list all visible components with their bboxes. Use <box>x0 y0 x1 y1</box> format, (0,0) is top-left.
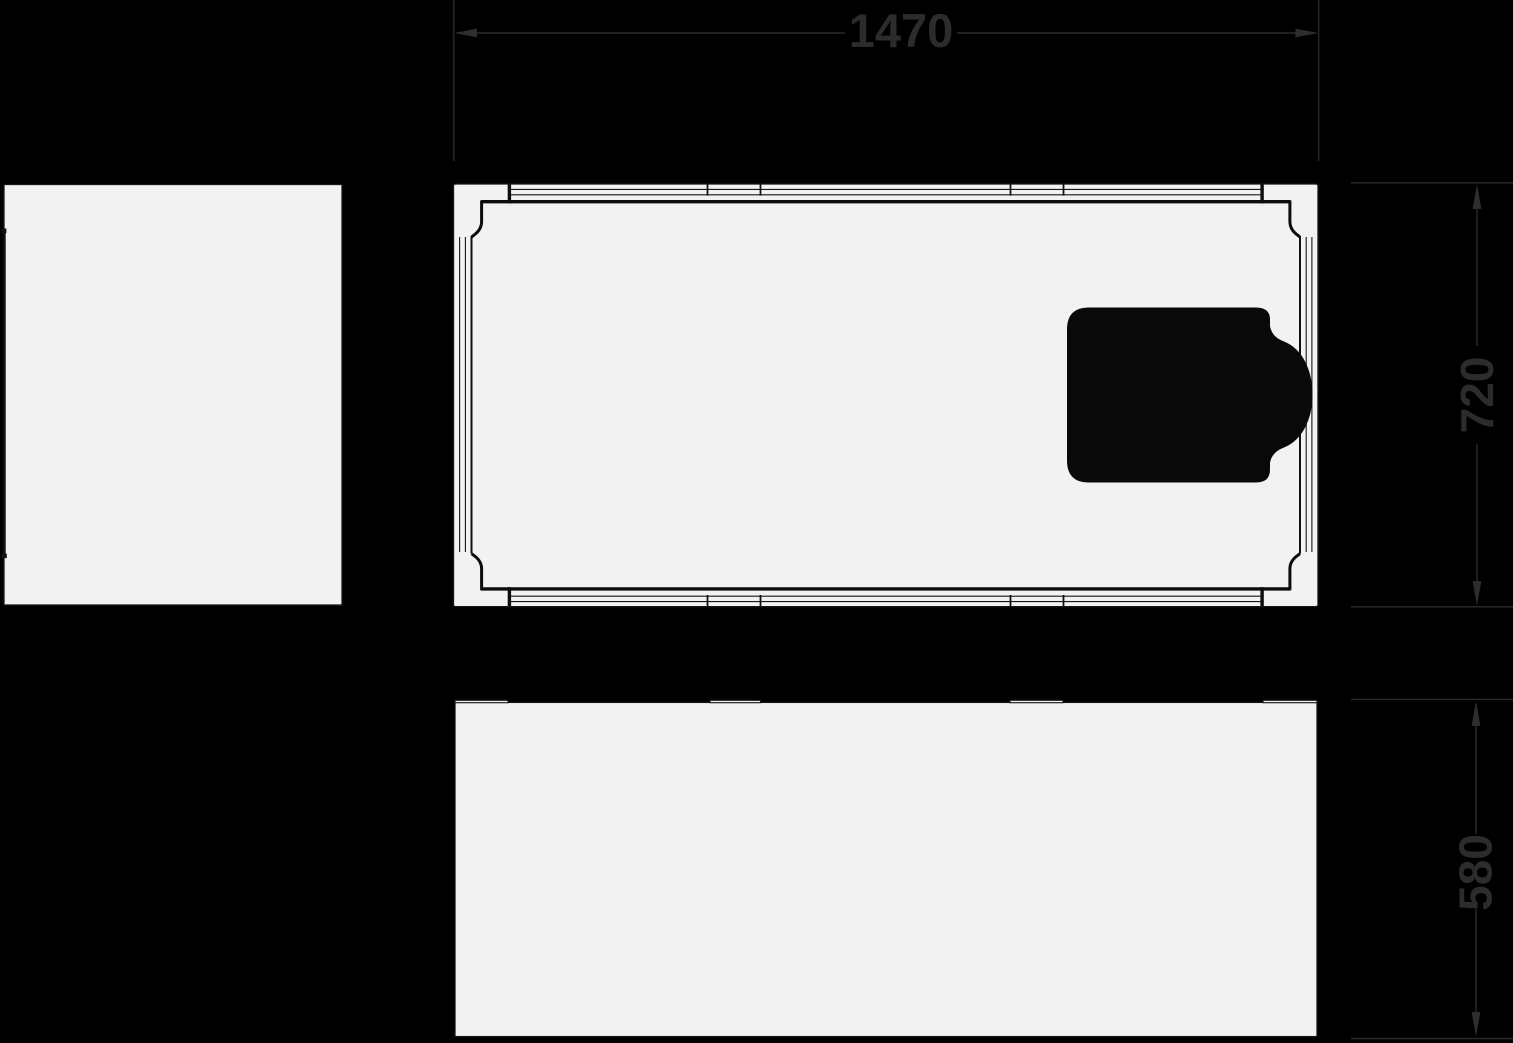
arrowhead-right-icon <box>1295 29 1318 38</box>
arrowhead-down-icon <box>1473 581 1482 605</box>
arrowhead-down-icon <box>1472 1012 1481 1037</box>
dimension-height: 580 <box>1351 699 1513 1038</box>
arrowhead-up-icon <box>1473 184 1482 209</box>
front-view-elevation <box>455 700 1317 1036</box>
side-view-seam-notch-bottom <box>2 554 7 559</box>
dimension-depth-label: 720 <box>1451 357 1503 434</box>
arrowhead-up-icon <box>1472 701 1481 726</box>
technical-drawing-page: 1470 720 580 <box>0 0 1513 1043</box>
top-view-plan <box>454 184 1319 607</box>
bathtub-dimension-drawing: 1470 720 580 <box>0 0 1513 1043</box>
side-view-body <box>4 185 342 606</box>
side-view-panel <box>1 185 342 606</box>
arrowhead-left-icon <box>454 29 477 38</box>
dimension-width-label: 1470 <box>849 4 954 57</box>
side-view-seam-notch-top <box>1 229 6 234</box>
dimension-width: 1470 <box>454 0 1319 161</box>
front-view-body <box>455 702 1317 1036</box>
dimension-height-label: 580 <box>1450 834 1502 911</box>
dimension-depth: 720 <box>1351 183 1513 607</box>
